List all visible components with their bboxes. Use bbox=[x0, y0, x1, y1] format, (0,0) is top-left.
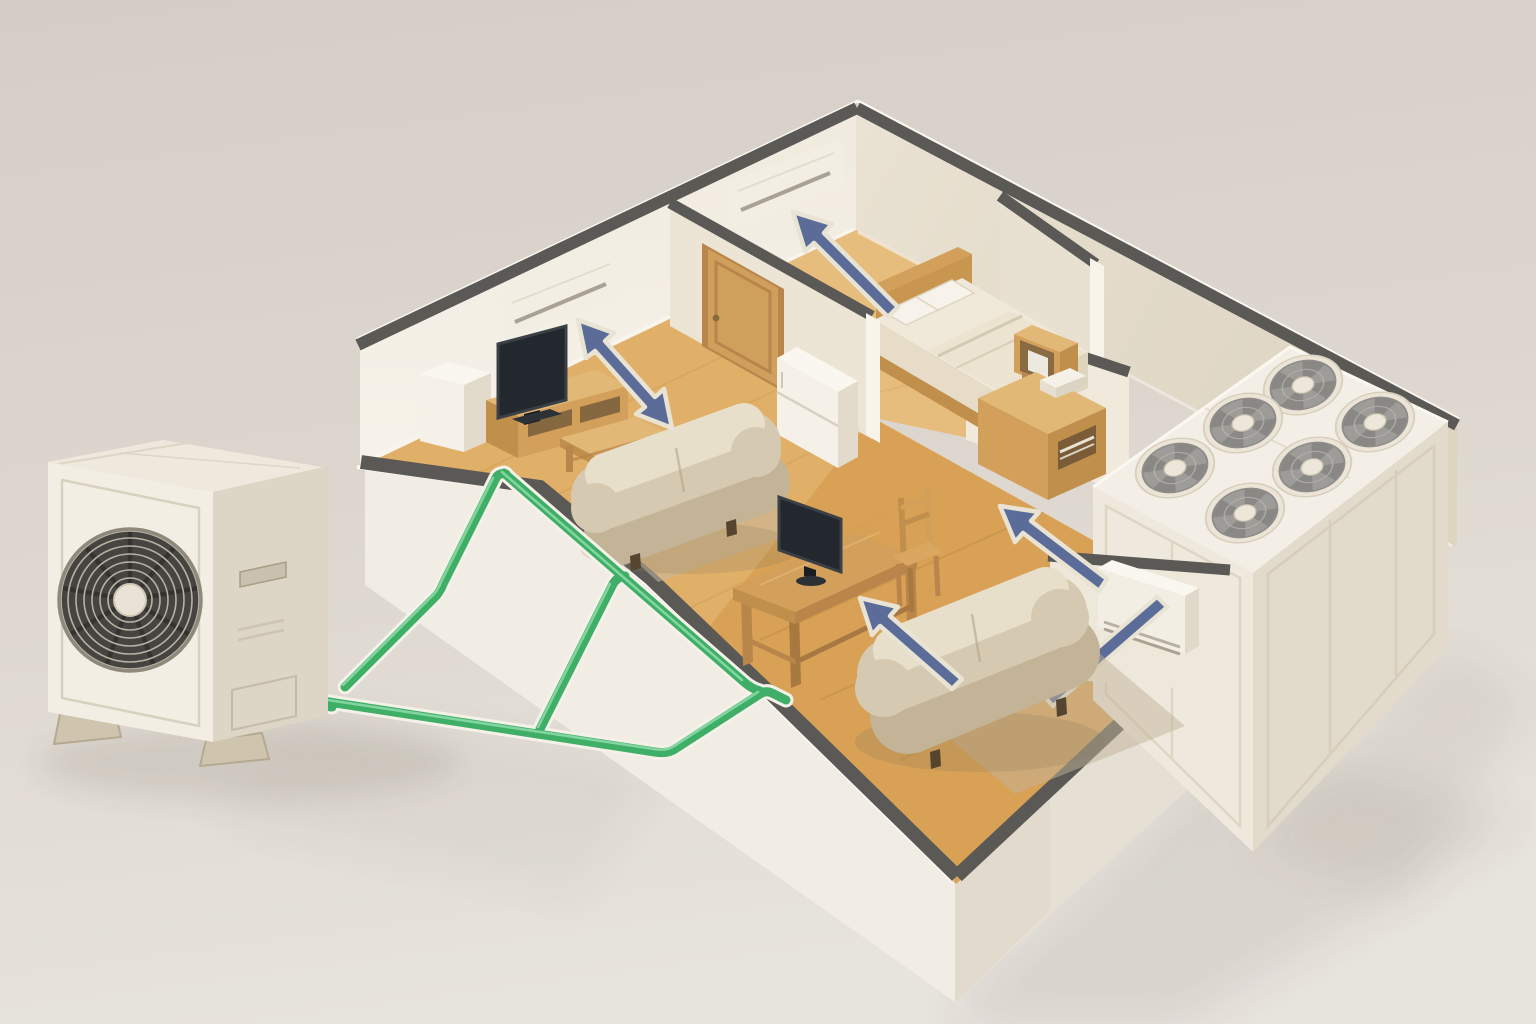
illustration-stage bbox=[0, 0, 1536, 1024]
door-knob bbox=[713, 315, 720, 322]
sofa-leg bbox=[726, 519, 737, 537]
outdoor-unit-side bbox=[213, 466, 328, 742]
chair-leg bbox=[898, 564, 900, 606]
chair-leg bbox=[936, 556, 938, 596]
chair-leg bbox=[910, 568, 912, 612]
outdoor-unit bbox=[48, 440, 328, 766]
sofa-armrest-right bbox=[731, 427, 781, 477]
sofa2-leg bbox=[1056, 697, 1067, 717]
console-unit-side bbox=[1185, 588, 1199, 654]
cabinet-front bbox=[420, 374, 464, 452]
sofa2-armrest-right bbox=[1031, 589, 1089, 647]
sofa-armrest-left bbox=[571, 483, 621, 533]
outdoor-fan-grille bbox=[58, 528, 202, 672]
sofa2-armrest-left bbox=[855, 659, 913, 717]
sofa-leg bbox=[630, 553, 641, 571]
fridge-side bbox=[838, 381, 858, 468]
grille-hub bbox=[114, 584, 146, 616]
door-wall-end-cap bbox=[866, 313, 880, 443]
tv2-base bbox=[796, 576, 826, 586]
white-cabinet bbox=[420, 362, 491, 452]
tv-screen bbox=[498, 326, 566, 418]
hvac-cutaway-illustration bbox=[0, 0, 1536, 1024]
sofa2-leg bbox=[930, 749, 941, 769]
